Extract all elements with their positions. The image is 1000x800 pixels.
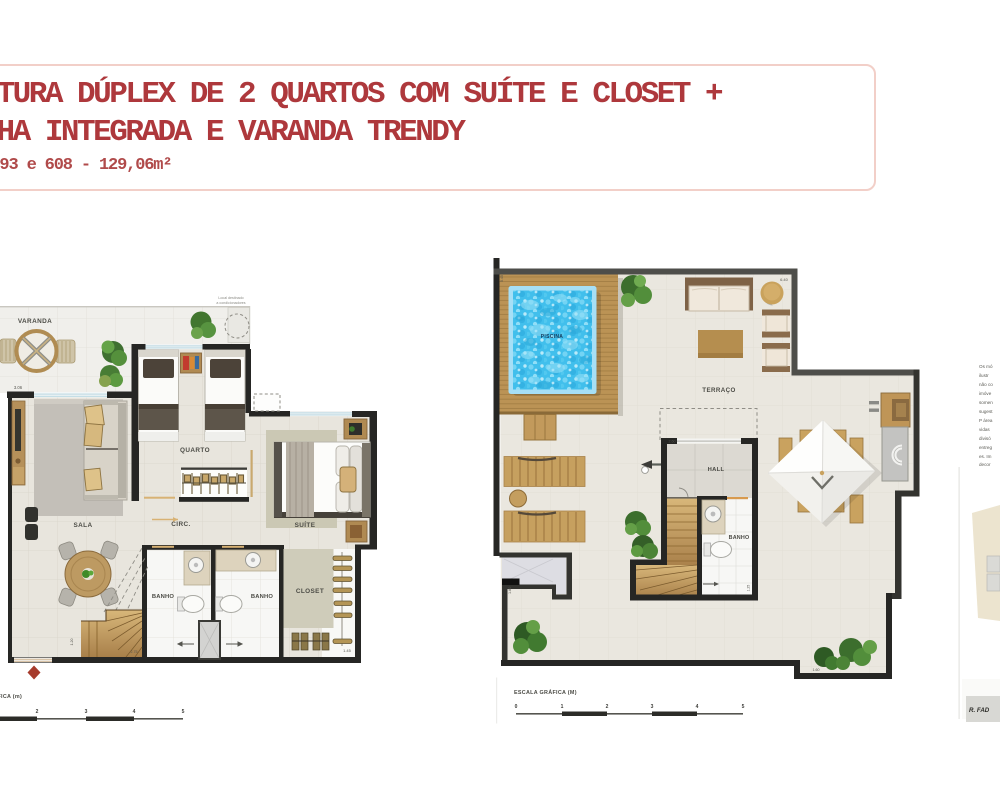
svg-text:TERRAÇO: TERRAÇO xyxy=(702,387,735,394)
svg-text:ilustr: ilustr xyxy=(979,373,989,378)
svg-text:1.25: 1.25 xyxy=(747,585,751,592)
svg-text:VARANDA: VARANDA xyxy=(18,318,52,325)
svg-text:BANHO: BANHO xyxy=(152,594,175,600)
svg-text:CLOSET: CLOSET xyxy=(296,588,324,595)
svg-text:a condicionadores: a condicionadores xyxy=(216,301,245,305)
svg-text:3.06: 3.06 xyxy=(14,385,23,390)
svg-text:SALA: SALA xyxy=(74,522,93,529)
svg-text:3: 3 xyxy=(85,709,88,715)
svg-text:1: 1 xyxy=(561,704,564,710)
svg-text:2: 2 xyxy=(606,704,609,710)
svg-text:ESCALA GRÁFICA (M): ESCALA GRÁFICA (M) xyxy=(514,689,577,696)
svg-text:0: 0 xyxy=(515,704,518,710)
svg-text:1.45: 1.45 xyxy=(343,648,352,653)
svg-text:2.75: 2.75 xyxy=(131,650,138,654)
svg-text:1.80: 1.80 xyxy=(508,587,512,594)
svg-text:P área: P área xyxy=(979,418,993,423)
svg-text:ESCALA GRÁFICA (m): ESCALA GRÁFICA (m) xyxy=(0,693,22,700)
svg-text:Local destinado: Local destinado xyxy=(218,296,243,300)
svg-text:PISCINA: PISCINA xyxy=(541,334,563,340)
svg-text:somen: somen xyxy=(979,400,993,405)
svg-text:sugest: sugest xyxy=(979,409,993,414)
svg-text:2.60: 2.60 xyxy=(669,440,676,444)
svg-text:5: 5 xyxy=(742,704,745,710)
svg-text:2: 2 xyxy=(36,709,39,715)
svg-text:divisó: divisó xyxy=(979,436,991,441)
svg-text:Os mó: Os mó xyxy=(979,364,993,369)
svg-text:entreg: entreg xyxy=(979,445,992,450)
svg-text:HALL: HALL xyxy=(708,467,725,473)
svg-text:1.20: 1.20 xyxy=(70,639,74,646)
svg-text:5: 5 xyxy=(182,709,185,715)
svg-text:6.40: 6.40 xyxy=(780,277,789,282)
svg-text:CIRC.: CIRC. xyxy=(171,521,190,528)
svg-text:decor: decor xyxy=(979,462,991,467)
svg-text:BANHO: BANHO xyxy=(251,594,274,600)
svg-text:não co: não co xyxy=(979,382,993,387)
svg-text:4: 4 xyxy=(696,704,699,710)
svg-text:5.45: 5.45 xyxy=(500,275,504,282)
svg-text:vidas: vidas xyxy=(979,427,990,432)
svg-text:BANHO: BANHO xyxy=(729,535,750,541)
svg-text:1.60: 1.60 xyxy=(813,668,820,672)
svg-text:es. Im: es. Im xyxy=(979,454,992,459)
svg-text:R. FAD: R. FAD xyxy=(969,707,990,714)
svg-text:4: 4 xyxy=(133,709,136,715)
svg-text:3: 3 xyxy=(651,704,654,710)
svg-text:QUARTO: QUARTO xyxy=(180,447,210,454)
svg-text:imóve: imóve xyxy=(979,391,992,396)
svg-text:SUÍTE: SUÍTE xyxy=(295,520,316,529)
